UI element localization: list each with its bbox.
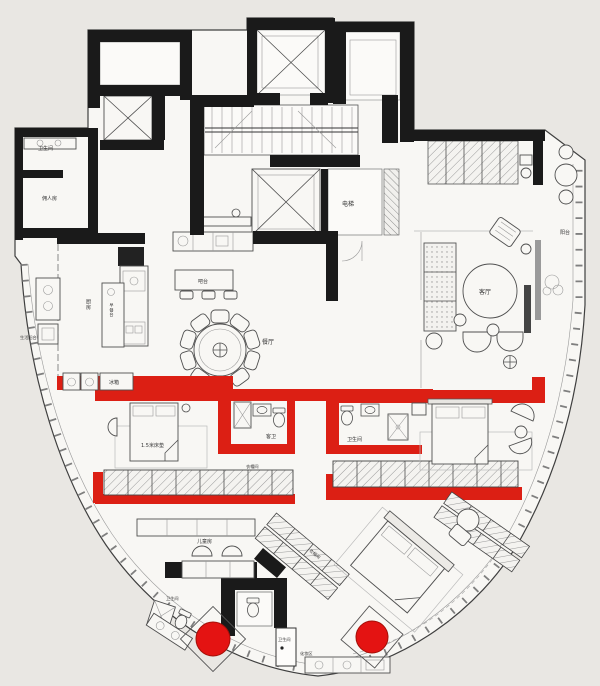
red-walls-part xyxy=(287,398,295,448)
closet-row-right-part xyxy=(333,461,518,487)
label-guest-bath: 客卫 xyxy=(266,433,276,440)
appliance-niche-part xyxy=(63,373,80,390)
kids-desk-part xyxy=(137,519,255,536)
balcony-right-part xyxy=(559,190,573,204)
coffee-table: 客厅 xyxy=(463,264,517,318)
structural-walls-part xyxy=(253,231,338,244)
kids-desk xyxy=(137,519,255,536)
structural-walls-part xyxy=(15,128,23,240)
label-bed-size: 1.5米床垫 xyxy=(141,442,164,449)
elevator-room-part xyxy=(328,169,382,235)
tv-panel xyxy=(524,285,531,333)
elevator-cab-topmiddle xyxy=(257,30,325,95)
room-topright-core-part xyxy=(345,32,400,100)
structural-walls-part xyxy=(382,95,398,143)
label-balcony: 阳台 xyxy=(560,229,570,236)
elevator-door-strip xyxy=(384,169,399,235)
middle-bathroom-part xyxy=(361,404,379,416)
label-elevator: 电梯 xyxy=(342,200,354,208)
room-topright-core xyxy=(345,32,400,100)
red-walls-part xyxy=(218,444,295,454)
guest-bathroom-part xyxy=(273,408,285,427)
side-table xyxy=(426,333,442,349)
bar-console: 吧台 xyxy=(175,270,237,299)
entry-closet-row xyxy=(428,141,532,184)
bed-left xyxy=(130,403,178,461)
red-walls-part xyxy=(330,487,522,500)
balcony-right-part xyxy=(555,164,577,186)
kitchen-tall-unit xyxy=(118,247,144,266)
structural-walls-part xyxy=(235,578,287,590)
living-chairs-part xyxy=(487,324,499,336)
elevator-shaft-left xyxy=(252,169,320,235)
stairwell xyxy=(204,105,358,155)
label-bath-middle: 卫生间 xyxy=(347,436,362,443)
pivot-door xyxy=(276,628,296,666)
nightstand xyxy=(412,403,426,415)
label-bar-counter: 吧台 xyxy=(198,278,208,285)
red-walls-part xyxy=(95,494,295,504)
label-kitchen: 厨房 xyxy=(85,299,91,311)
guest-bathroom-part xyxy=(253,404,271,416)
bed-right-part xyxy=(432,404,488,464)
ceiling-symbol xyxy=(504,356,517,369)
sofa-part xyxy=(424,243,456,331)
label-service-balcony: 生活阳台 xyxy=(20,334,37,341)
bathtub-right-part xyxy=(356,621,388,653)
core-wc-part xyxy=(247,598,259,617)
structural-walls-part xyxy=(57,233,145,244)
structural-walls-part xyxy=(410,130,545,141)
entry-closet-row-part xyxy=(521,168,531,178)
living-right-wall xyxy=(535,240,541,320)
bed-right xyxy=(428,399,492,464)
hall-console xyxy=(203,217,251,226)
structural-walls-part xyxy=(345,22,405,32)
label-master-bath: 卫生间 xyxy=(278,636,291,643)
label-kids-bath: 卫生间 xyxy=(166,595,179,602)
core-wc-part xyxy=(280,646,283,649)
bedroom-chairs-part xyxy=(515,426,527,438)
label-makeup-area: 化妆区 xyxy=(300,650,313,657)
label-living-room: 客厅 xyxy=(479,288,491,296)
structural-walls-part xyxy=(88,128,98,238)
structural-walls-part xyxy=(400,22,414,142)
structural-walls-part xyxy=(321,169,328,235)
red-walls-part xyxy=(326,445,422,454)
bar-console-part xyxy=(224,291,237,299)
structural-walls-part xyxy=(100,85,192,96)
structural-walls-part xyxy=(250,93,280,105)
structural-walls-part xyxy=(88,30,192,42)
structural-walls-part xyxy=(274,590,287,628)
closet-row-left-part xyxy=(104,470,293,495)
appliance-niche-part xyxy=(81,373,98,390)
living-chairs-part xyxy=(454,314,466,326)
bed-left-part xyxy=(130,403,178,461)
entry-closet-row-part xyxy=(428,141,518,184)
side-table-small xyxy=(521,244,531,254)
label-fridge: 冰箱 xyxy=(109,379,119,386)
structural-walls-part xyxy=(333,22,346,104)
bar-console-part xyxy=(180,291,193,299)
bathtub-left-part xyxy=(196,622,230,656)
bed-right-part xyxy=(428,399,492,404)
structural-walls-part xyxy=(88,30,100,108)
appliance-niche: 冰箱 xyxy=(63,373,133,390)
label-dining-room: 餐厅 xyxy=(262,338,274,346)
label-bath-top-left: 卫生间 xyxy=(38,145,53,152)
structural-walls-part xyxy=(247,18,257,103)
structural-walls-part xyxy=(310,93,328,105)
balcony-right-part xyxy=(559,145,573,159)
structural-walls-part xyxy=(152,96,165,140)
dining-chairs-part xyxy=(211,310,229,323)
structural-walls-part xyxy=(100,140,164,150)
structural-walls-part xyxy=(190,103,204,235)
service-balcony-part xyxy=(38,324,58,344)
bar-console-part xyxy=(202,291,215,299)
closet-row-right xyxy=(333,461,518,487)
structural-walls-part xyxy=(247,18,333,30)
structural-walls-part xyxy=(326,231,338,301)
kitchen-island: 早餐台 xyxy=(102,283,124,347)
structural-walls-part xyxy=(15,170,63,178)
red-walls-part xyxy=(532,377,545,397)
elevator-room: 电梯 xyxy=(328,169,382,235)
label-kids-room: 儿童房 xyxy=(197,538,212,545)
label-maid-room: 佣人房 xyxy=(42,195,57,202)
screenshot-root: 电梯 卫生间 佣人房 xyxy=(0,0,600,686)
stairwell-part xyxy=(204,105,358,155)
entry-closet-row-part xyxy=(520,155,532,165)
structural-walls-part xyxy=(270,155,360,167)
service-balcony-part xyxy=(36,278,60,320)
kids-counter xyxy=(182,561,254,578)
structural-walls-part xyxy=(533,135,543,185)
label-closet-corridor: 衣帽间 xyxy=(246,463,259,470)
label-breakfast-bar: 早餐台 xyxy=(109,303,115,318)
sofa xyxy=(424,243,456,331)
elevator-cab-topleft-part xyxy=(100,42,180,85)
structural-walls-part xyxy=(15,128,98,137)
middle-bathroom-part xyxy=(341,406,353,425)
kitchen-counter-top xyxy=(173,232,253,251)
floor-plan: 电梯 卫生间 佣人房 xyxy=(0,0,600,686)
